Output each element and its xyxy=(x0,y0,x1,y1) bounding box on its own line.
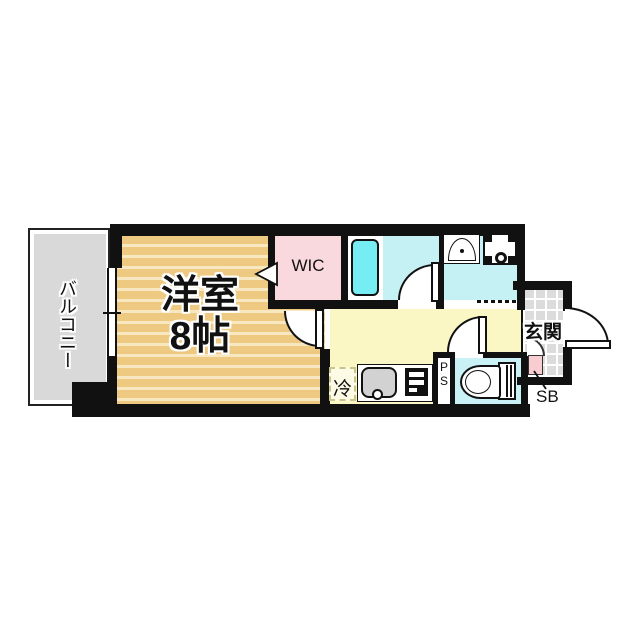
room-size: 8帖 xyxy=(110,316,290,357)
pipe-space-label: P S xyxy=(438,360,450,388)
refrigerator-label: 冷 xyxy=(329,374,356,401)
wic-label: WIC xyxy=(275,256,341,276)
shoe-box-label: SB xyxy=(536,387,570,407)
ps-letter-p: P xyxy=(438,360,450,374)
ps-letter-s: S xyxy=(438,374,450,388)
western-room-label: 洋室 8帖 xyxy=(110,275,290,357)
floor-plan: バルコニー 洋室 8帖 WIC 玄関 冷 P S SB xyxy=(0,0,640,640)
room-name: 洋室 xyxy=(110,275,290,316)
entrance-label: 玄関 xyxy=(518,317,568,344)
balcony-label: バルコニー xyxy=(53,272,81,376)
